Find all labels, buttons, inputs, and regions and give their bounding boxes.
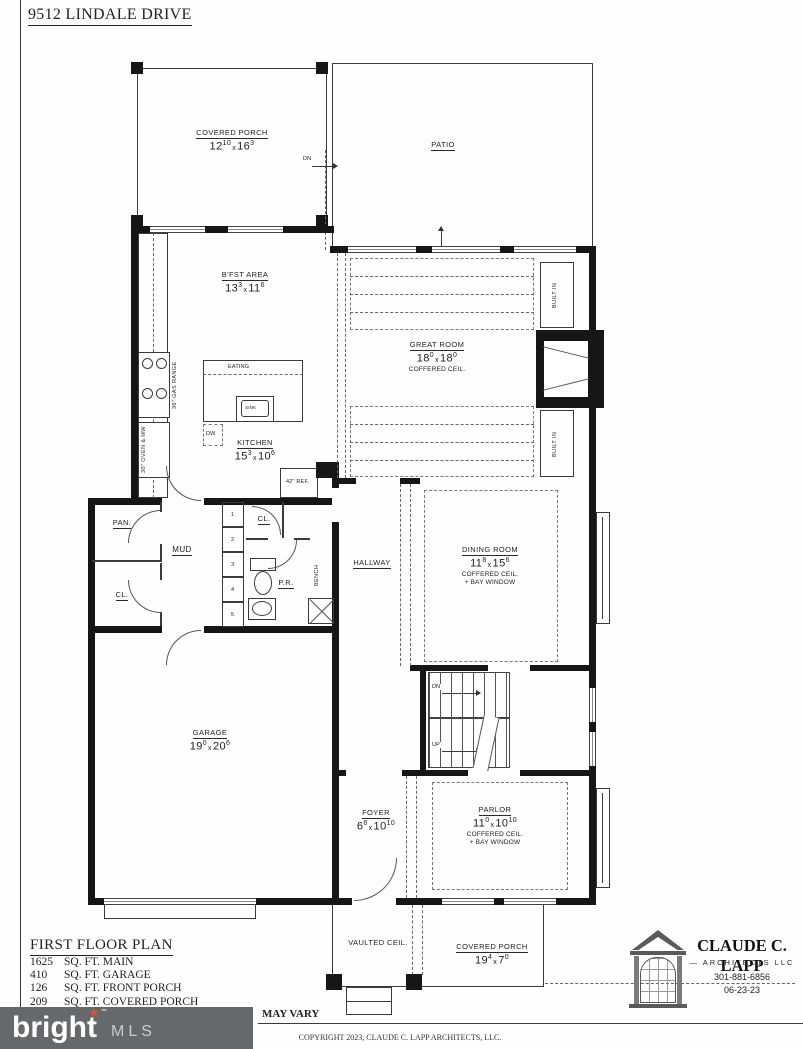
area-row: 1625SQ. FT. MAIN — [30, 956, 198, 969]
wall-center — [332, 478, 339, 903]
apron-line — [255, 905, 256, 918]
wall-pan-south — [92, 560, 162, 562]
ceiling-beam-line — [350, 276, 534, 277]
room-name: PAN. — [113, 518, 132, 529]
cubby-number: 5 — [231, 612, 234, 618]
room-name: CL. — [116, 590, 129, 601]
burner — [142, 358, 153, 369]
room-name: PATIO — [431, 140, 454, 151]
bay-window-glass — [602, 793, 603, 883]
room-label-pantry: PAN. — [96, 518, 148, 529]
room-name: DINING ROOM — [462, 545, 518, 556]
cased-opening-dashed — [400, 484, 401, 666]
room-name: KITCHEN — [237, 438, 273, 449]
step-arrow — [312, 166, 334, 167]
floor-plan-sheet: 9512 LINDALE DRIVE COVERED PORCH 1210x16… — [0, 0, 803, 1049]
burner — [156, 358, 167, 369]
room-dimensions: 190x206 — [140, 740, 280, 753]
entablature — [630, 951, 686, 955]
wall-garage-north — [88, 626, 338, 633]
room-name: HALLWAY — [353, 558, 390, 569]
room-dimensions: 180x180 — [367, 352, 507, 365]
patio-outline — [332, 63, 593, 250]
footer-rule — [258, 1023, 803, 1024]
cubby: 4 — [222, 577, 244, 602]
patio-arrow-head — [438, 226, 444, 231]
room-label-mud: MUD — [152, 545, 212, 556]
room-name: COVERED PORCH — [196, 128, 267, 139]
cased-opening-dashed — [416, 776, 417, 898]
window — [348, 246, 416, 253]
room-name: FOYER — [362, 808, 390, 819]
area-row: 126SQ. FT. FRONT PORCH — [30, 982, 198, 995]
room-name: COVERED PORCH — [456, 942, 527, 953]
island-overhang-line — [203, 374, 303, 375]
garage-door — [104, 898, 256, 905]
room-dimensions: 1210x163 — [157, 140, 307, 153]
room-label-hallway: HALLWAY — [336, 558, 408, 569]
step-dashed-line — [325, 150, 326, 250]
room-dimensions: 118x156 — [420, 557, 560, 570]
cased-opening-dashed — [410, 484, 411, 666]
ceiling-beam-line — [350, 294, 534, 295]
front-door-arc — [354, 858, 397, 901]
pediment-inner — [637, 937, 679, 951]
cubby: 1 — [222, 502, 244, 527]
bay-window — [596, 788, 610, 888]
apron-line — [104, 918, 256, 919]
stair-arrow — [442, 693, 476, 694]
area-row: 410SQ. FT. GARAGE — [30, 969, 198, 982]
room-divider-dashed — [345, 253, 346, 478]
cubby: 3 — [222, 552, 244, 577]
window — [432, 246, 500, 253]
burner — [142, 388, 153, 399]
stair-arrow-head — [476, 690, 481, 696]
room-label-vaulted: VAULTED CEIL. — [330, 938, 426, 948]
wall-stair-west — [420, 665, 426, 770]
sink-basin — [252, 601, 272, 616]
entry-step-line — [346, 1001, 392, 1002]
step-down-label: DN — [303, 156, 311, 162]
toilet-tank — [250, 558, 276, 571]
sink-label: SINK — [245, 405, 256, 410]
architect-subtitle: — ARCHITECTS LLC — [682, 958, 802, 967]
cubby-number: 2 — [231, 537, 234, 543]
title-block: FIRST FLOOR PLAN 1625SQ. FT. MAIN 410SQ.… — [30, 936, 198, 1009]
door-arc — [166, 630, 201, 665]
room-label-kitchen: KITCHEN 153x106 — [185, 438, 325, 463]
room-label-patio: PATIO — [403, 140, 483, 151]
porch-post — [131, 62, 143, 74]
room-dimensions: 133x116 — [175, 282, 315, 295]
room-divider-dashed — [337, 253, 338, 478]
refrigerator-label: 42" REF. — [286, 479, 309, 485]
sheet-border-line — [20, 0, 21, 1012]
porch-post — [316, 62, 328, 74]
apron-line — [104, 905, 105, 918]
window-sash — [640, 957, 676, 1003]
gas-range-label: 36" GAS RANGE — [172, 352, 178, 418]
door-opening — [488, 665, 530, 671]
window — [228, 226, 283, 233]
room-dimensions: 110x1010 — [425, 817, 565, 830]
door-opening — [346, 770, 402, 776]
wall-cl-small — [282, 502, 284, 540]
wall-corner — [316, 462, 339, 478]
door-opening — [468, 770, 520, 776]
window — [504, 898, 556, 905]
plan-heading: FIRST FLOOR PLAN — [30, 937, 173, 956]
oven-label: 30" OVEN & MW — [141, 424, 147, 476]
cased-opening — [356, 478, 400, 484]
room-label-garage: GARAGE 190x206 — [140, 728, 280, 753]
bay-window — [596, 512, 610, 624]
room-label-covered-porch-bottom: COVERED PORCH 194x70 — [432, 942, 552, 967]
room-label-foyer: FOYER 66x1010 — [338, 808, 414, 833]
stair-up-label: UP — [431, 742, 441, 748]
window — [150, 226, 205, 233]
room-name: PARLOR — [479, 805, 512, 816]
brightmls-logo-text: bright★™ — [12, 1013, 97, 1043]
star-icon: ★ — [89, 1008, 99, 1019]
room-label-great-room: GREAT ROOM 180x180 COFFERED CEIL. — [367, 340, 507, 373]
porch-post — [406, 974, 422, 990]
room-label-parlor: PARLOR 110x1010 COFFERED CEIL. + BAY WIN… — [425, 805, 565, 846]
may-vary-note: MAY VARY — [262, 1008, 319, 1020]
trademark-icon: ™ — [101, 1009, 107, 1015]
ceiling-beam-line — [350, 424, 534, 425]
stair-flight-upper — [428, 672, 510, 718]
room-dimensions: 194x70 — [432, 954, 552, 967]
room-note: COFFERED CEIL. — [420, 571, 560, 578]
cased-opening-dashed — [406, 776, 407, 898]
window — [589, 732, 596, 766]
chase-box — [308, 598, 334, 624]
room-label-dining: DINING ROOM 118x156 COFFERED CEIL. + BAY… — [420, 545, 560, 586]
room-note: + BAY WINDOW — [420, 579, 560, 586]
window — [589, 688, 596, 722]
architect-window-icon — [632, 930, 684, 1010]
wall-kitchen-west — [131, 226, 138, 505]
burner — [156, 388, 167, 399]
plan-date: 06-23-23 — [682, 985, 802, 995]
pilaster — [634, 956, 639, 1004]
built-in-label: BUILT IN — [552, 417, 558, 471]
dishwasher-label: DW — [206, 431, 216, 437]
bench-label: BENCH — [314, 556, 320, 594]
room-name: GREAT ROOM — [410, 340, 465, 351]
porch-post — [326, 974, 342, 990]
ceiling-beam-line — [350, 460, 534, 461]
architect-name: CLAUDE C. LAPP — [682, 936, 802, 976]
room-label-closet-left: CL. — [98, 590, 146, 601]
brightmls-watermark: bright★™ MLS — [0, 1007, 253, 1049]
mls-label: MLS — [111, 1023, 156, 1041]
room-name: GARAGE — [193, 728, 228, 739]
room-name: B'FST AREA — [222, 270, 269, 281]
room-note: + BAY WINDOW — [425, 839, 565, 846]
door-arc — [166, 466, 201, 501]
cubby: 5 — [222, 602, 244, 627]
room-note: COFFERED CEIL. — [425, 831, 565, 838]
room-name: P.R. — [278, 578, 293, 589]
page-title: 9512 LINDALE DRIVE — [28, 6, 192, 26]
eating-label: EATING — [228, 364, 249, 370]
room-dimensions: 66x1010 — [338, 820, 414, 833]
stair-dn-label: DN — [431, 684, 441, 690]
bay-window-glass — [602, 517, 603, 619]
copyright-text: COPYRIGHT 2023, CLAUDE C. LAPP ARCHITECT… — [200, 1033, 600, 1042]
room-label-bfst: B'FST AREA 133x116 — [175, 270, 315, 295]
wall-mud-north — [88, 498, 338, 505]
stair-arrow — [442, 751, 476, 752]
ceiling-beam-line — [350, 312, 534, 313]
door-opening — [332, 488, 339, 522]
architect-phone: 301-881-6856 — [682, 972, 802, 982]
window-base — [629, 1004, 687, 1008]
room-name: MUD — [172, 545, 191, 556]
room-name: CL. — [258, 514, 271, 525]
room-label-powder: P.R. — [268, 578, 304, 589]
cubby-number: 1 — [231, 512, 234, 518]
room-label-closet-small: CL. — [246, 514, 282, 525]
ceiling-beam-line — [350, 442, 534, 443]
cubby: 2 — [222, 527, 244, 552]
window — [514, 246, 576, 253]
built-in-label: BUILT IN — [552, 268, 558, 322]
cubby-number: 4 — [231, 587, 234, 593]
room-dimensions: 153x106 — [185, 450, 325, 463]
window — [442, 898, 494, 905]
room-name: VAULTED CEIL. — [348, 938, 408, 948]
room-note: COFFERED CEIL. — [367, 366, 507, 373]
cubby-number: 3 — [231, 562, 234, 568]
room-label-covered-porch-top: COVERED PORCH 1210x163 — [157, 128, 307, 153]
